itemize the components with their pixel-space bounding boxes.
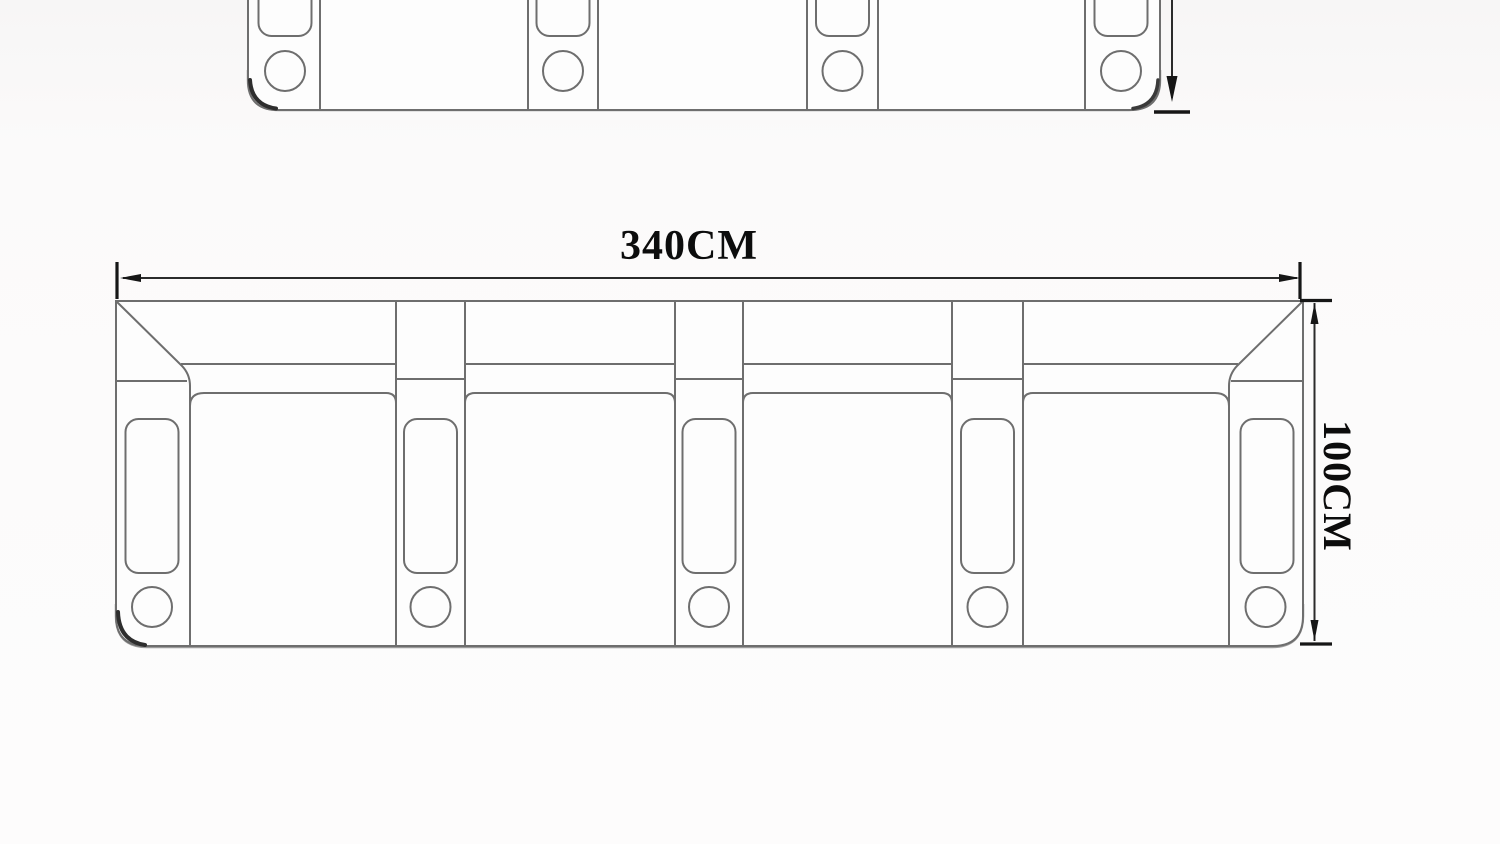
- width-dimension-label: 340CM: [539, 222, 839, 270]
- sofa-outline: [116, 301, 1303, 646]
- sofa-top-view-secondary: [248, 0, 1160, 110]
- diagram-canvas: 340CM 100CM: [0, 0, 1500, 844]
- arrowhead-right-icon: [1279, 274, 1300, 282]
- arrowhead-up-icon: [1311, 303, 1319, 324]
- height-dimension-label: 100CM: [1315, 336, 1359, 636]
- arrowhead-down-icon: [1167, 76, 1178, 102]
- sofa-outline: [248, 0, 1160, 110]
- sofa-dimension-drawing: [0, 0, 1500, 844]
- arrowhead-left-icon: [120, 274, 141, 282]
- sofa-top-view-main: [116, 301, 1303, 646]
